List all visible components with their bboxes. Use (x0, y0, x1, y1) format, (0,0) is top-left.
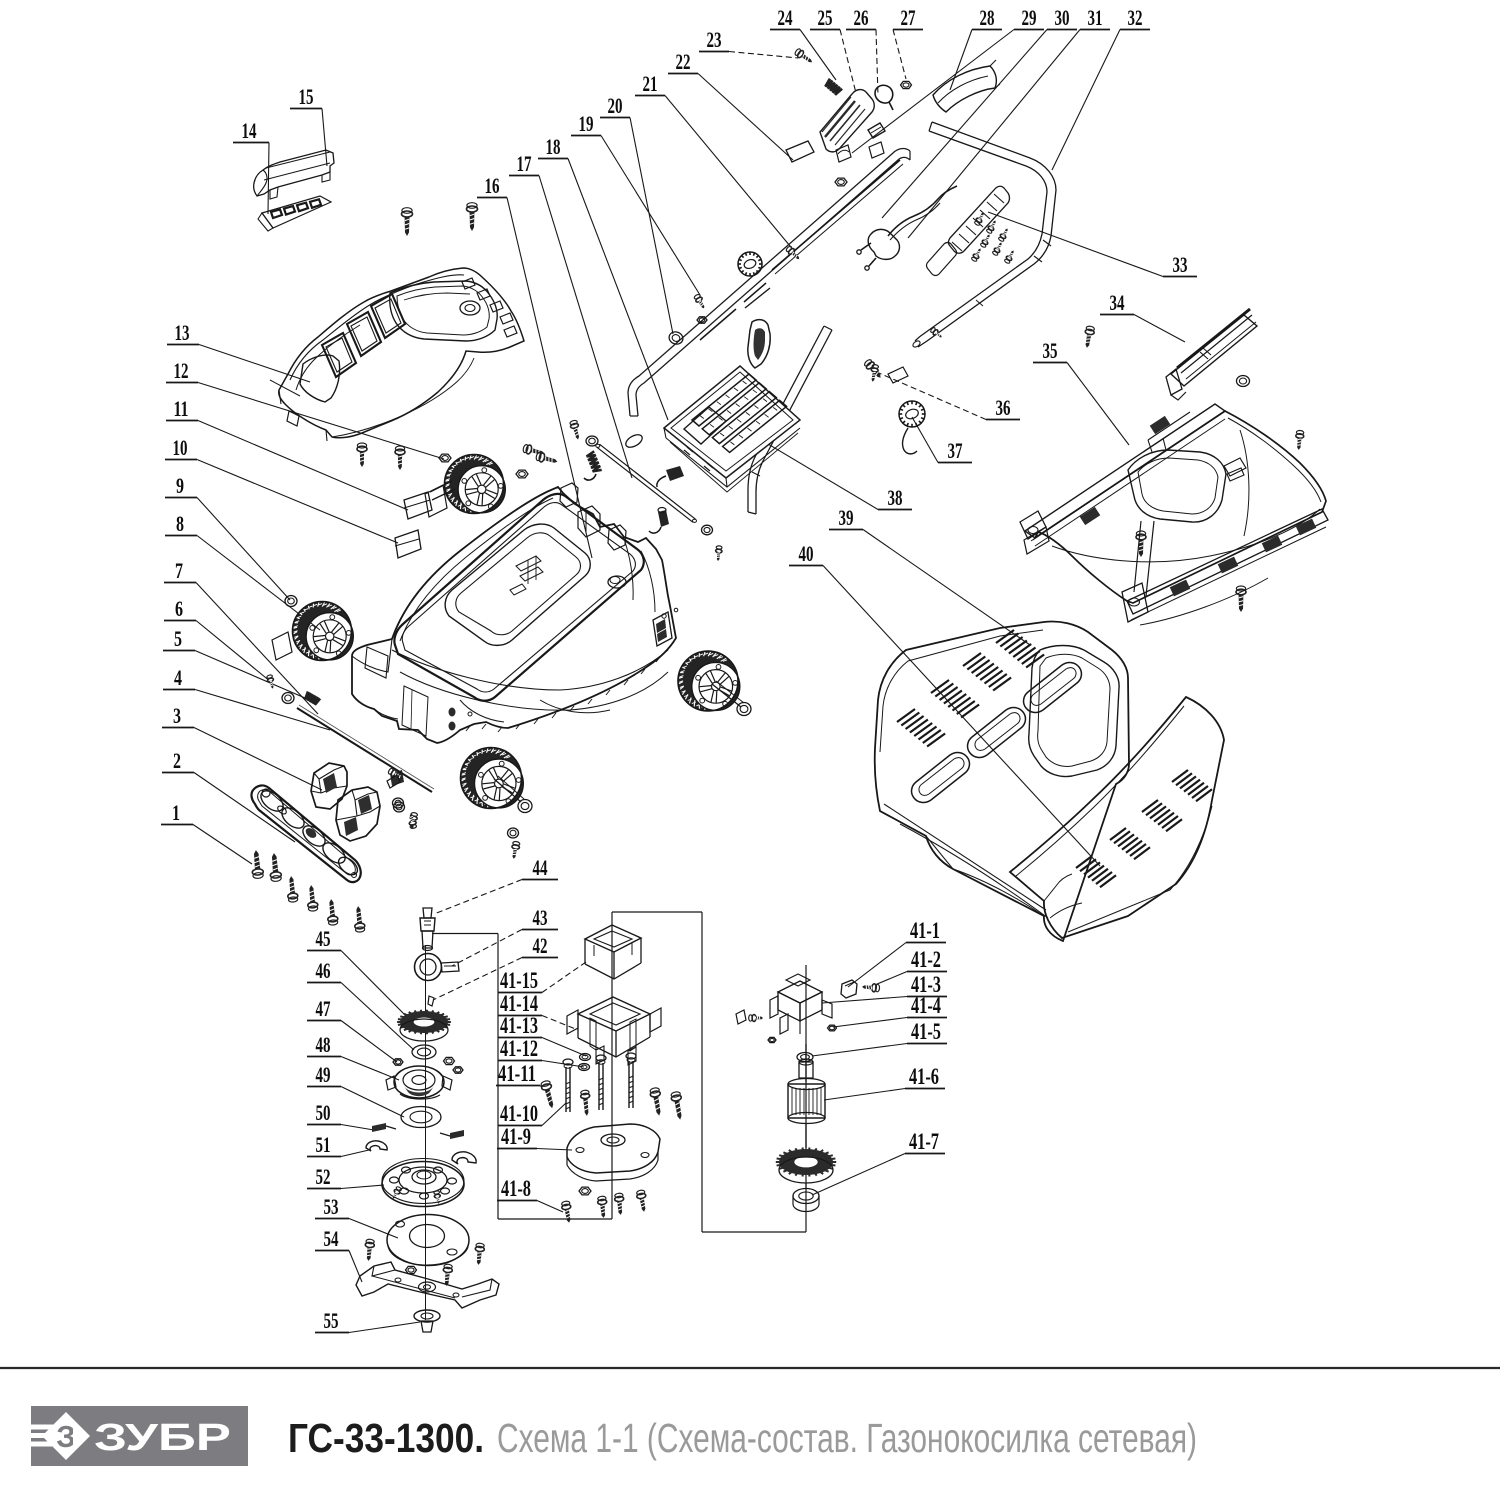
svg-text:40: 40 (799, 541, 814, 566)
svg-text:50: 50 (316, 1100, 331, 1125)
svg-text:22: 22 (676, 49, 691, 74)
svg-text:13: 13 (175, 320, 190, 345)
svg-text:28: 28 (980, 5, 995, 30)
svg-text:9: 9 (176, 473, 184, 498)
svg-text:36: 36 (996, 395, 1011, 420)
svg-text:41-9: 41-9 (501, 1124, 531, 1149)
svg-text:18: 18 (546, 134, 561, 159)
svg-text:52: 52 (316, 1164, 331, 1189)
svg-text:20: 20 (608, 93, 623, 118)
svg-text:3: 3 (173, 703, 181, 728)
svg-text:41-15: 41-15 (500, 968, 538, 993)
svg-text:2: 2 (173, 748, 181, 773)
svg-text:41-6: 41-6 (909, 1064, 939, 1089)
svg-text:41-4: 41-4 (911, 993, 941, 1018)
svg-text:15: 15 (299, 84, 314, 109)
svg-text:4: 4 (174, 665, 182, 690)
svg-text:33: 33 (1173, 252, 1188, 277)
svg-text:44: 44 (533, 855, 548, 880)
svg-text:Схема 1-1 (Схема-состав. Газон: Схема 1-1 (Схема-состав. Газонокосилка с… (497, 1415, 1197, 1461)
svg-text:24: 24 (778, 5, 793, 30)
svg-text:17: 17 (517, 151, 532, 176)
svg-text:41-2: 41-2 (911, 947, 941, 972)
svg-text:41-8: 41-8 (501, 1176, 531, 1201)
svg-text:26: 26 (854, 5, 869, 30)
svg-text:49: 49 (316, 1062, 331, 1087)
svg-text:41-11: 41-11 (498, 1061, 536, 1086)
svg-text:11: 11 (174, 396, 189, 421)
svg-text:8: 8 (176, 511, 184, 536)
svg-text:34: 34 (1110, 290, 1125, 315)
svg-text:5: 5 (174, 626, 182, 651)
svg-text:23: 23 (707, 27, 722, 52)
svg-text:7: 7 (175, 558, 183, 583)
svg-text:39: 39 (839, 505, 854, 530)
svg-text:41-7: 41-7 (909, 1129, 939, 1154)
svg-text:42: 42 (533, 933, 548, 958)
svg-text:54: 54 (324, 1226, 339, 1251)
svg-text:30: 30 (1055, 5, 1070, 30)
svg-text:41-13: 41-13 (500, 1013, 538, 1038)
svg-text:12: 12 (174, 358, 189, 383)
svg-text:ГС-33-1300.: ГС-33-1300. (288, 1415, 484, 1461)
svg-text:47: 47 (316, 996, 331, 1021)
svg-text:29: 29 (1022, 5, 1037, 30)
svg-text:ЗУБР: ЗУБР (94, 1417, 231, 1459)
svg-text:41-10: 41-10 (500, 1101, 538, 1126)
svg-text:19: 19 (579, 111, 594, 136)
svg-text:З: З (56, 1419, 75, 1454)
svg-text:35: 35 (1043, 338, 1058, 363)
svg-text:14: 14 (242, 118, 257, 143)
svg-text:51: 51 (316, 1132, 331, 1157)
svg-text:53: 53 (324, 1194, 339, 1219)
svg-text:21: 21 (643, 71, 658, 96)
svg-text:43: 43 (533, 905, 548, 930)
svg-text:31: 31 (1088, 5, 1103, 30)
svg-text:48: 48 (316, 1032, 331, 1057)
svg-text:25: 25 (818, 5, 833, 30)
svg-text:55: 55 (324, 1308, 339, 1333)
svg-text:45: 45 (316, 926, 331, 951)
svg-text:32: 32 (1128, 5, 1143, 30)
svg-text:41-12: 41-12 (500, 1036, 538, 1061)
svg-text:38: 38 (888, 485, 903, 510)
svg-text:41-1: 41-1 (910, 918, 940, 943)
svg-text:1: 1 (172, 800, 180, 825)
svg-text:41-5: 41-5 (911, 1019, 941, 1044)
svg-text:6: 6 (175, 596, 183, 621)
svg-text:27: 27 (901, 5, 916, 30)
svg-text:10: 10 (173, 435, 188, 460)
svg-text:46: 46 (316, 958, 331, 983)
svg-text:37: 37 (948, 438, 963, 463)
svg-text:16: 16 (485, 173, 500, 198)
